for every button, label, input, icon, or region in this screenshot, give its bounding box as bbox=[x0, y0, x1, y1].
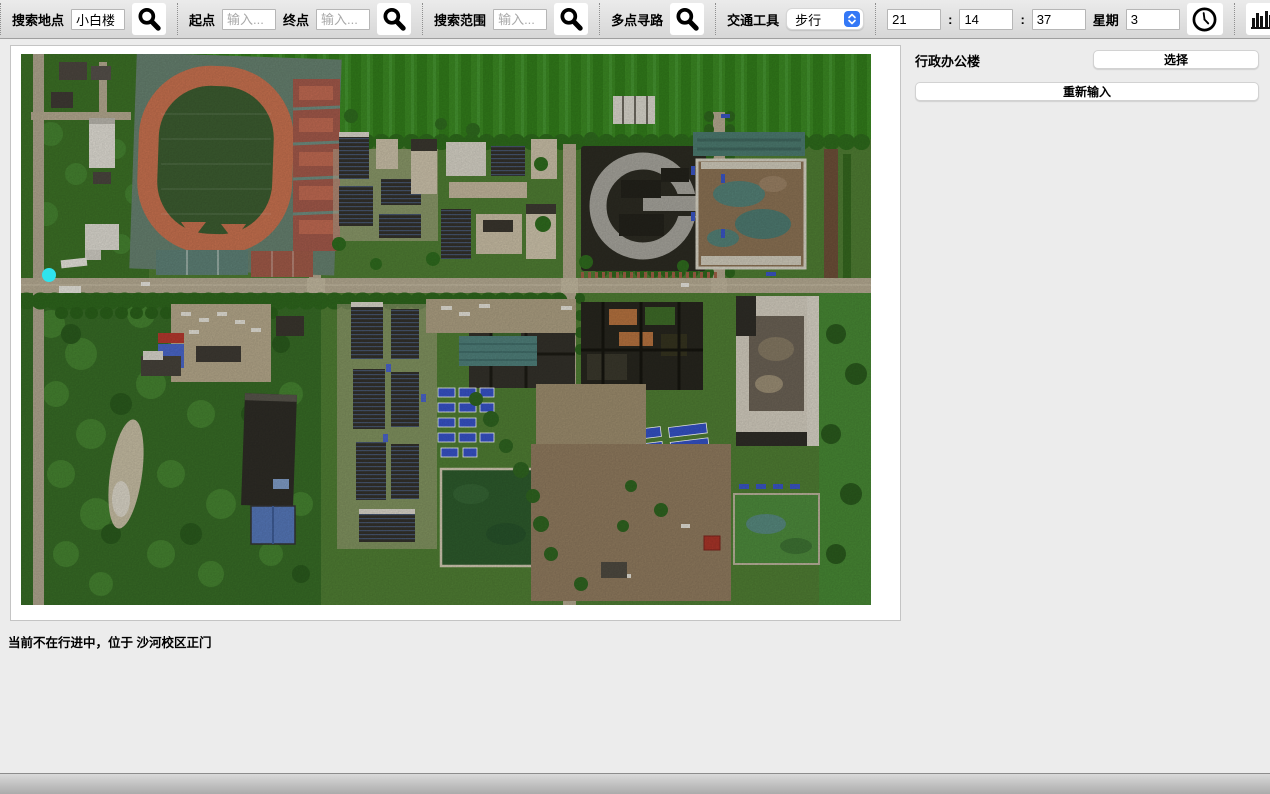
route-search-button[interactable] bbox=[377, 3, 411, 35]
current-location-marker[interactable] bbox=[42, 268, 56, 282]
week-label: 星期 bbox=[1093, 10, 1119, 29]
map-frame bbox=[10, 45, 901, 621]
set-time-button[interactable] bbox=[1187, 3, 1223, 35]
statistics-group bbox=[1235, 0, 1270, 38]
transport-label: 交通工具 bbox=[727, 10, 779, 29]
hour-input[interactable] bbox=[887, 9, 941, 30]
time-colon: : bbox=[1020, 12, 1024, 27]
reinput-button[interactable]: 重新输入 bbox=[915, 82, 1259, 101]
search-range-label: 搜索范围 bbox=[434, 10, 486, 29]
minute-input[interactable] bbox=[959, 9, 1013, 30]
route-end-input[interactable] bbox=[316, 9, 370, 30]
transport-select[interactable]: 步行 bbox=[786, 8, 864, 30]
second-input[interactable] bbox=[1032, 9, 1086, 30]
photo-texture bbox=[21, 54, 871, 605]
clock-icon bbox=[1191, 6, 1218, 33]
window-bottom-bar bbox=[0, 773, 1270, 794]
chevron-up-down-icon bbox=[844, 11, 860, 27]
transport-group: 交通工具 步行 bbox=[716, 0, 875, 38]
search-icon bbox=[558, 6, 584, 32]
search-place-button[interactable] bbox=[132, 3, 166, 35]
route-start-label: 起点 bbox=[189, 10, 215, 29]
search-place-label: 搜索地点 bbox=[12, 10, 64, 29]
building-name-label: 行政办公楼 bbox=[915, 48, 980, 70]
search-place-input[interactable] bbox=[71, 9, 125, 30]
route-end-label: 终点 bbox=[283, 10, 309, 29]
search-icon bbox=[381, 6, 407, 32]
multi-point-label: 多点寻路 bbox=[611, 10, 663, 29]
route-group: 起点 终点 bbox=[178, 0, 422, 38]
search-icon bbox=[136, 6, 162, 32]
building-panel: 行政办公楼 选择 重新输入 bbox=[915, 48, 1259, 101]
time-colon: : bbox=[948, 12, 952, 27]
search-range-button[interactable] bbox=[554, 3, 588, 35]
search-icon bbox=[674, 6, 700, 32]
statistics-button[interactable] bbox=[1246, 3, 1270, 35]
route-start-input[interactable] bbox=[222, 9, 276, 30]
select-button[interactable]: 选择 bbox=[1093, 50, 1259, 69]
transport-selected-value: 步行 bbox=[787, 10, 844, 29]
week-input[interactable] bbox=[1126, 9, 1180, 30]
multi-point-group: 多点寻路 bbox=[600, 0, 715, 38]
status-text: 当前不在行进中，位于 沙河校区正门 bbox=[8, 632, 211, 651]
toolbar: 搜索地点 起点 终点 搜索范围 bbox=[0, 0, 1270, 39]
search-range-group: 搜索范围 bbox=[423, 0, 599, 38]
time-group: : : 星期 bbox=[876, 0, 1234, 38]
satellite-map[interactable] bbox=[21, 54, 871, 605]
search-place-group: 搜索地点 bbox=[1, 0, 177, 38]
search-range-input[interactable] bbox=[493, 9, 547, 30]
multi-point-search-button[interactable] bbox=[670, 3, 704, 35]
bar-chart-icon bbox=[1249, 6, 1270, 32]
